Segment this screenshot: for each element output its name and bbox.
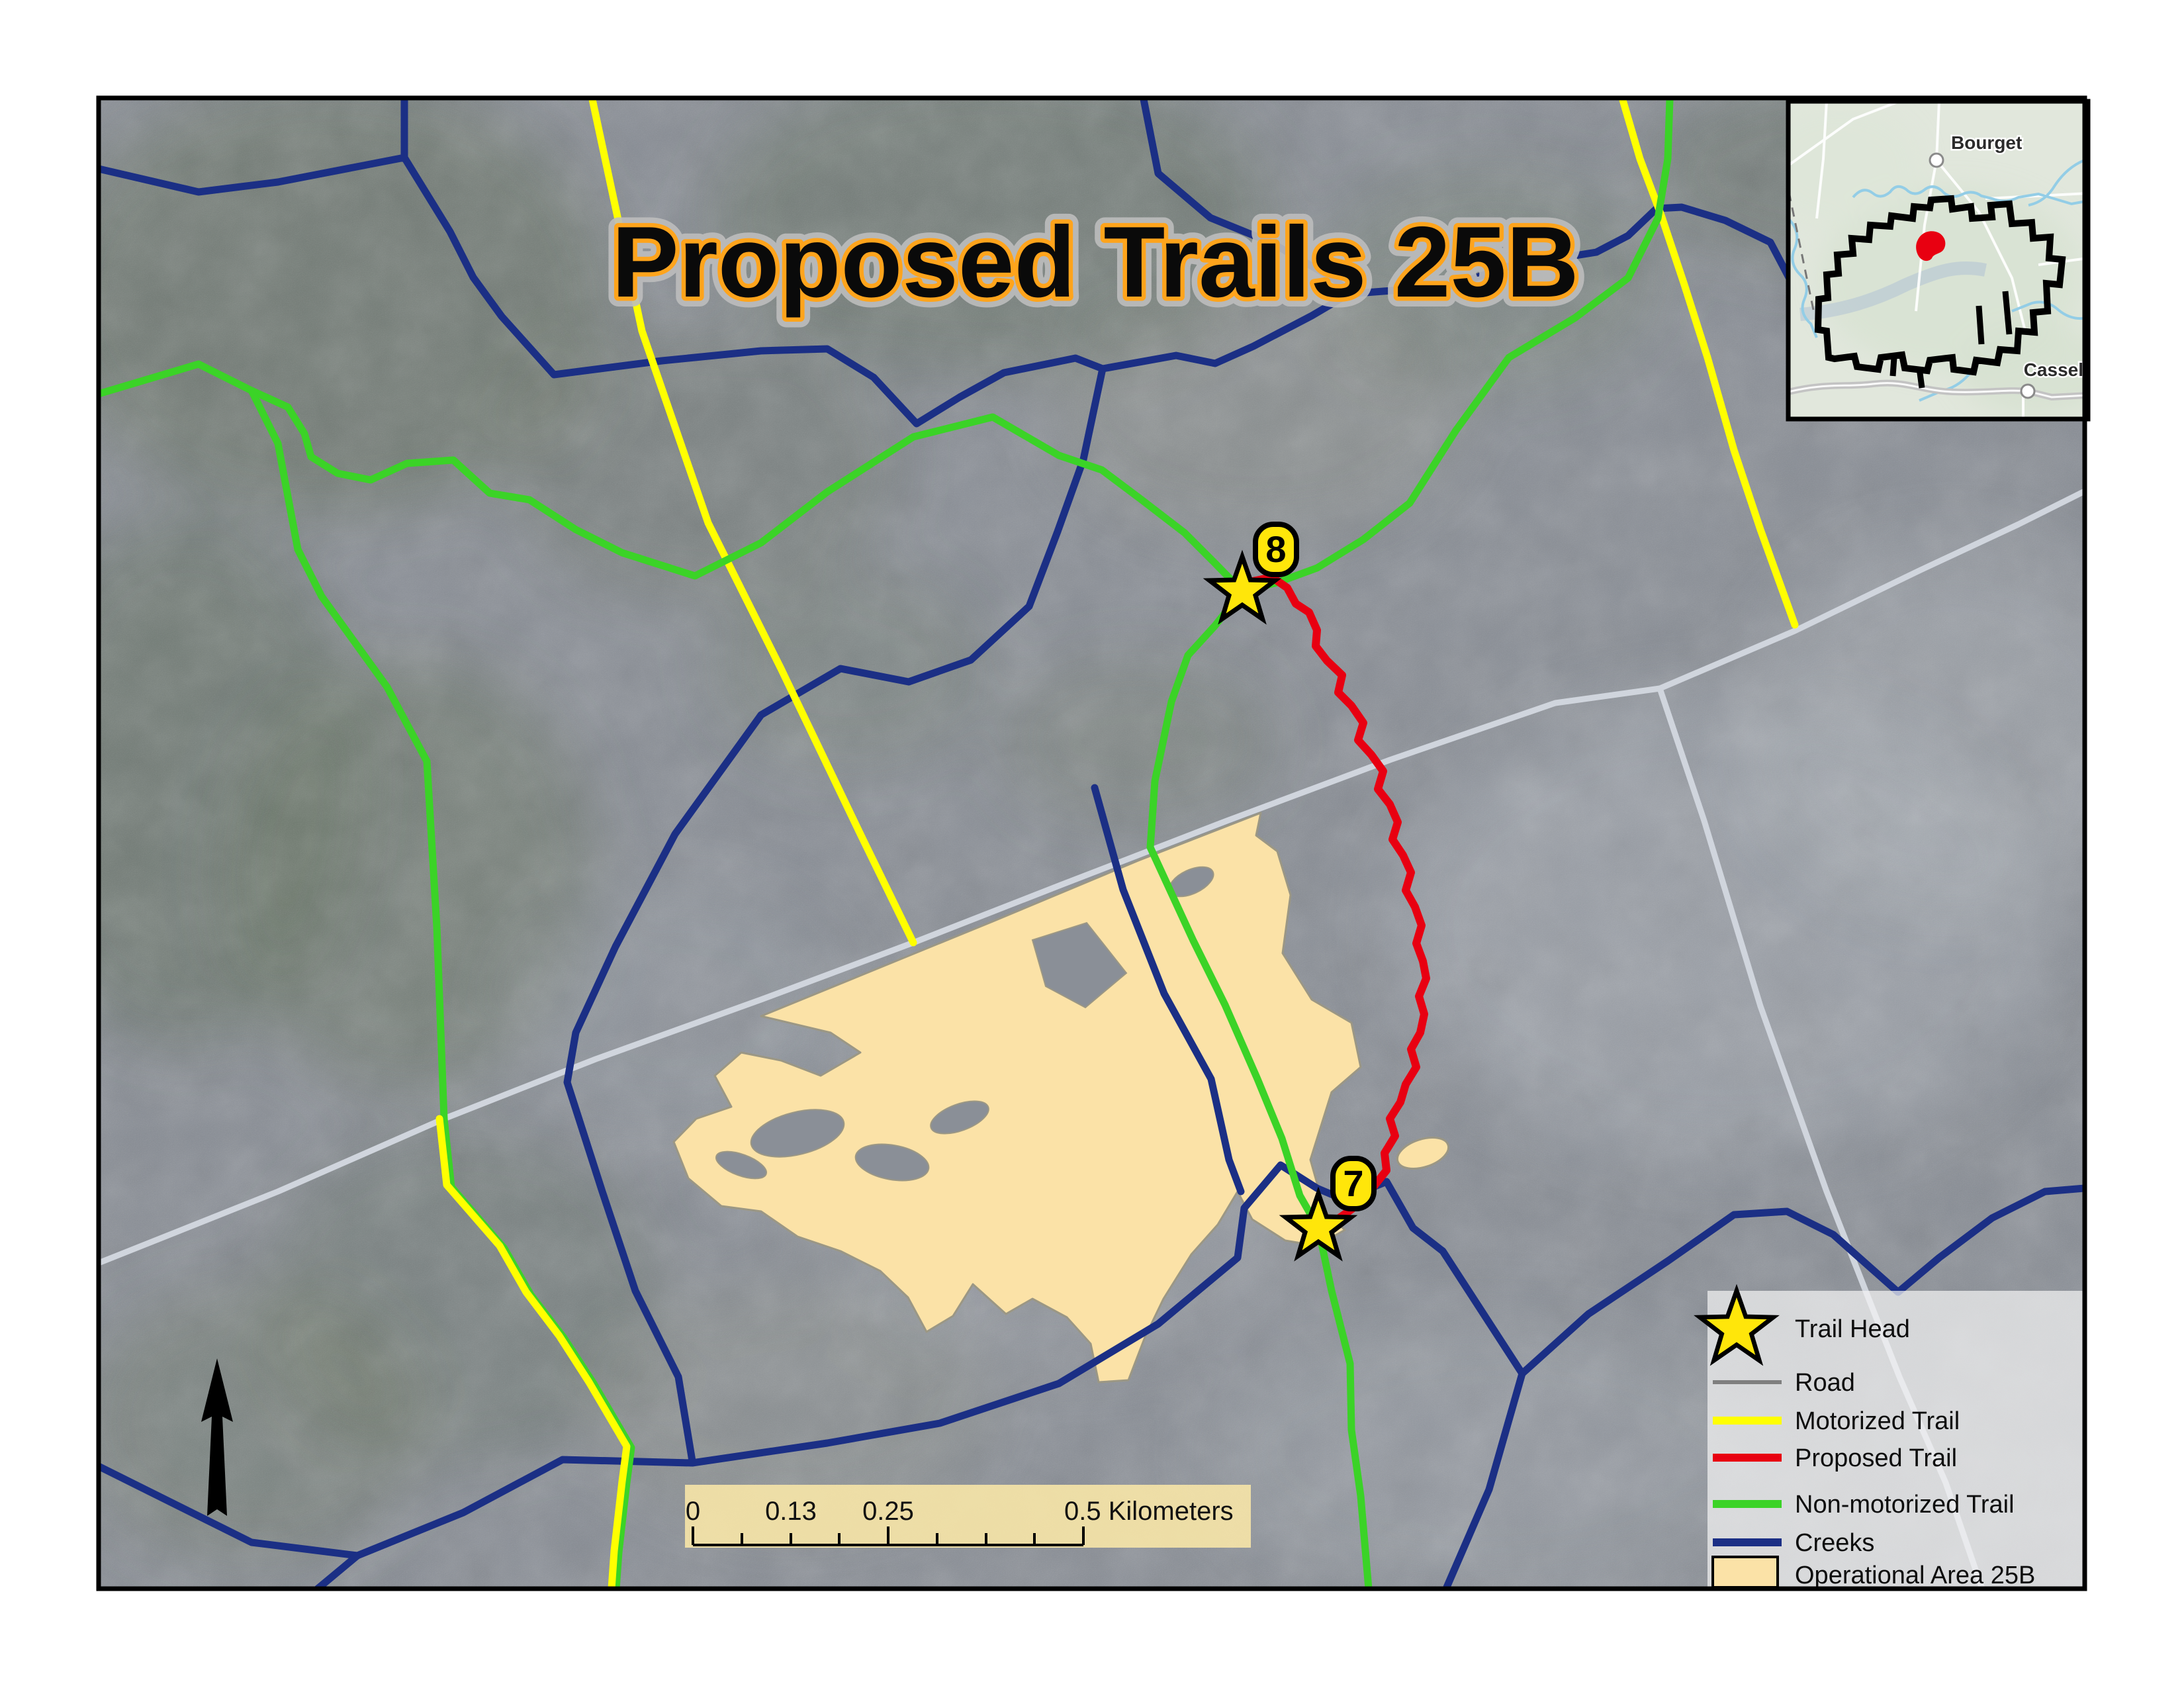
scalebar-label-025: 0.25 (862, 1497, 914, 1526)
legend-label-nonmotorized: Non-motorized Trail (1795, 1491, 2015, 1519)
trailhead-7-number: 7 (1343, 1162, 1363, 1204)
scalebar-label-013: 0.13 (765, 1497, 817, 1526)
inset-town-label-cassel: Cassel (2024, 359, 2083, 380)
map-document: 8 7 Proposed Trails 25B Proposed Trails … (0, 0, 2184, 1688)
scalebar-label-0: 0 (686, 1497, 700, 1526)
legend-label-operational-area: Operational Area 25B (1795, 1562, 2035, 1589)
map-title: Proposed Trails 25B (612, 206, 1578, 318)
legend-label-motorized: Motorized Trail (1795, 1407, 1960, 1435)
legend-label-creeks: Creeks (1795, 1529, 1874, 1557)
inset-map: Bourget Cassel (1760, 101, 2118, 419)
legend-label-road: Road (1795, 1369, 1855, 1397)
map-title-group: Proposed Trails 25B Proposed Trails 25B (612, 206, 1578, 318)
map-canvas: 8 7 Proposed Trails 25B Proposed Trails … (0, 0, 2184, 1688)
legend: Trail Head Road Motorized Trail Proposed… (1700, 1291, 2085, 1589)
scalebar: 0 0.13 0.25 0.5 Kilometers (685, 1485, 1251, 1548)
inset-town-marker-bourget (1930, 154, 1943, 167)
trailhead-8-number: 8 (1265, 528, 1286, 570)
scalebar-label-05km: 0.5 Kilometers (1064, 1497, 1234, 1526)
inset-town-marker-cassel (2021, 385, 2034, 398)
legend-label-proposed: Proposed Trail (1795, 1444, 1957, 1472)
legend-label-trailhead: Trail Head (1795, 1315, 1910, 1343)
legend-area-swatch (1713, 1557, 1778, 1587)
inset-town-label-bourget: Bourget (1951, 132, 2022, 153)
